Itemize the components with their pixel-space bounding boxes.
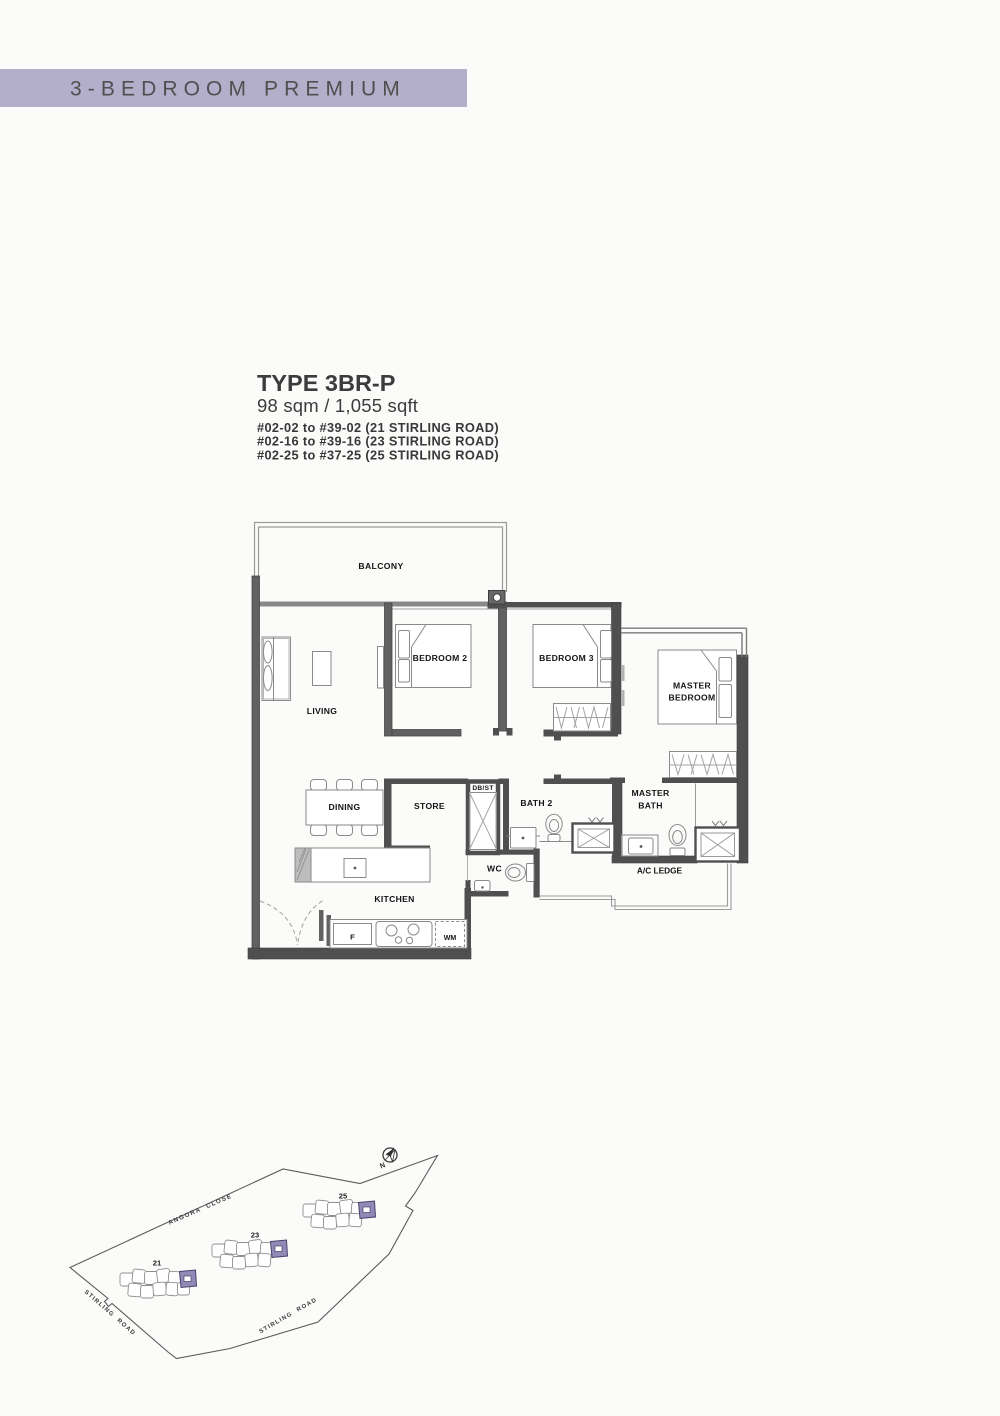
svg-text:DB/ST: DB/ST [472, 785, 493, 792]
svg-text:#02-16 to #39-16 (23 STIRLING: #02-16 to #39-16 (23 STIRLING ROAD) [257, 434, 499, 449]
svg-text:F: F [350, 933, 355, 942]
svg-text:MASTER: MASTER [631, 788, 670, 798]
svg-text:STORE: STORE [414, 801, 445, 811]
svg-text:WM: WM [444, 935, 457, 942]
svg-text:#02-25 to #37-25 (25 STIRLING: #02-25 to #37-25 (25 STIRLING ROAD) [257, 448, 499, 463]
svg-text:MASTER: MASTER [673, 681, 712, 691]
svg-text:25: 25 [339, 1192, 348, 1201]
svg-text:BEDROOM: BEDROOM [669, 693, 716, 703]
svg-text:23: 23 [251, 1231, 259, 1240]
svg-text:3-BEDROOM PREMIUM: 3-BEDROOM PREMIUM [70, 78, 406, 101]
svg-text:BALCONY: BALCONY [358, 561, 403, 571]
svg-text:BATH: BATH [638, 801, 662, 811]
svg-text:KITCHEN: KITCHEN [374, 894, 414, 904]
svg-text:DINING: DINING [329, 802, 361, 812]
svg-text:WC: WC [487, 864, 502, 874]
svg-text:21: 21 [153, 1259, 162, 1268]
svg-text:BEDROOM 2: BEDROOM 2 [413, 653, 468, 663]
svg-text:A/C LEDGE: A/C LEDGE [637, 866, 683, 876]
svg-text:BEDROOM 3: BEDROOM 3 [539, 653, 594, 663]
svg-text:98 sqm / 1,055 sqft: 98 sqm / 1,055 sqft [257, 395, 418, 416]
svg-text:BATH 2: BATH 2 [520, 798, 552, 808]
svg-text:LIVING: LIVING [307, 706, 337, 716]
svg-text:TYPE 3BR-P: TYPE 3BR-P [257, 370, 395, 396]
